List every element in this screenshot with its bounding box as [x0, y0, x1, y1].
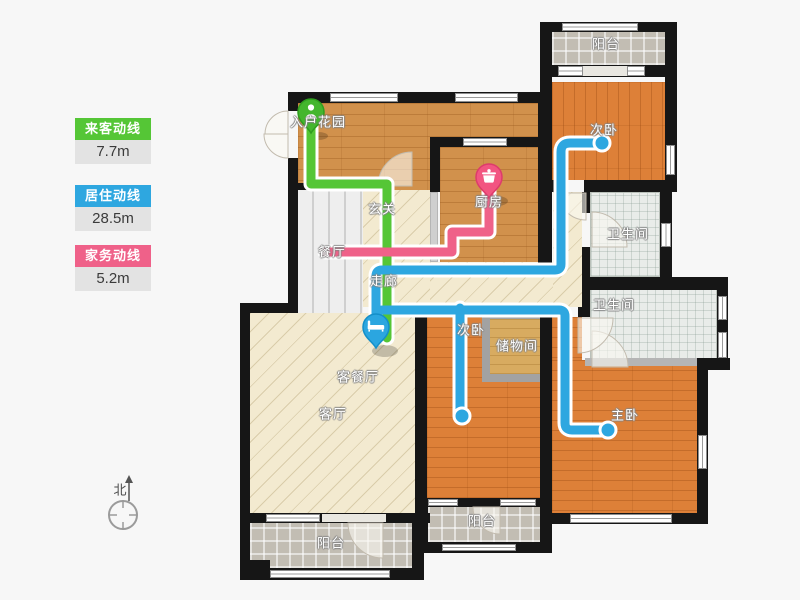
- legend-item-living: 居住动线 28.5m: [75, 185, 151, 231]
- routes-overlay: [0, 0, 800, 600]
- legend-chores-header[interactable]: 家务动线: [75, 245, 151, 267]
- compass-north-label: 北: [113, 480, 126, 499]
- legend-item-guest: 来客动线 7.7m: [75, 118, 151, 164]
- room-label-living-dining: 客餐厅: [337, 367, 379, 386]
- room-label-bedroom-mid: 次卧: [457, 320, 485, 339]
- room-label-storage: 储物间: [496, 336, 538, 355]
- legend-guest-header[interactable]: 来客动线: [75, 118, 151, 140]
- room-label-corridor: 走廊: [370, 271, 398, 290]
- room-label-bedroom-top: 次卧: [590, 120, 618, 139]
- legend-living-header[interactable]: 居住动线: [75, 185, 151, 207]
- room-label-kitchen: 厨房: [475, 192, 503, 211]
- floorplan-canvas: 入户花园 玄关 餐厅 厨房 走廊 客餐厅 客厅 次卧 次卧 主卧 储物间 卫生间…: [0, 0, 800, 600]
- room-label-living: 客厅: [319, 404, 347, 423]
- room-label-bath-top: 卫生间: [607, 224, 649, 243]
- room-label-entry-garden: 入户花园: [290, 112, 346, 131]
- room-label-master: 主卧: [611, 405, 639, 424]
- room-label-dining: 餐厅: [318, 242, 346, 261]
- room-label-balcony-top: 阳台: [592, 34, 620, 53]
- room-label-balcony-left: 阳台: [317, 533, 345, 552]
- entry-door-leaf: [265, 111, 288, 134]
- legend-living-value: 28.5m: [75, 207, 151, 231]
- room-label-foyer: 玄关: [368, 199, 396, 218]
- room-label-balcony-mid: 阳台: [468, 511, 496, 530]
- legend-guest-value: 7.7m: [75, 140, 151, 164]
- legend-chores-value: 5.2m: [75, 267, 151, 291]
- living-balcony-door: [348, 523, 383, 558]
- entry-door-leaf: [264, 134, 288, 158]
- legend-item-chores: 家务动线 5.2m: [75, 245, 151, 291]
- room-label-bath-bottom: 卫生间: [593, 295, 635, 314]
